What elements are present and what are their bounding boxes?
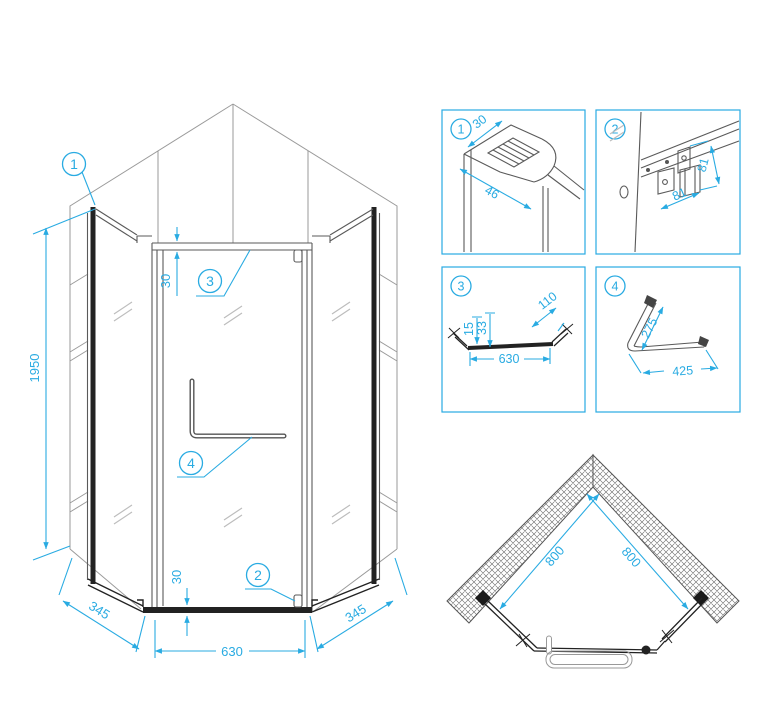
dim-height-label: 1950 [27, 354, 42, 383]
glass-reflection-marks [114, 302, 350, 527]
callout-4-number: 4 [187, 455, 195, 471]
detail-4-dim-long-left [643, 371, 664, 373]
callout-2-leader [245, 589, 295, 601]
detail-2-dim-upper-line [711, 146, 719, 184]
detail-3-dim-total-label: 33 [475, 321, 489, 335]
detail-1-callout-number: 1 [458, 123, 465, 137]
plan-view: 800 800 [447, 455, 739, 668]
detail-1-profile-nose [534, 139, 584, 199]
plan-glass-right [657, 598, 705, 650]
technical-drawing-page: 1950 30 30 630 345 345 1 3 [0, 0, 776, 722]
door-glass-edges [163, 250, 302, 606]
detail-3-dim-profile-label: 15 [462, 322, 476, 336]
detail-4-dim-long-right [701, 368, 717, 369]
detail-2-wall-knob [620, 186, 628, 198]
plan-pivot-dot [642, 646, 651, 655]
detail-2-glass-edge [635, 112, 641, 252]
top-beams [96, 209, 373, 243]
detail-2-hinge-pin [682, 156, 686, 160]
corner-frames [152, 250, 312, 611]
detail-3-dim-ticks [472, 313, 495, 317]
detail-2-plate-hole [663, 180, 668, 185]
enclosure-frame [88, 207, 380, 612]
detail-3-bar [468, 344, 553, 348]
detail-2-screw-right [665, 160, 669, 164]
plan-glass-left [485, 601, 537, 651]
detail-4-dim-long-label: 425 [672, 363, 694, 378]
callout-2-number: 2 [254, 567, 262, 583]
plan-dim-left-label: 800 [542, 543, 568, 569]
detail-1-dim-width-label: 30 [470, 112, 490, 132]
dim-top-profile-label: 30 [158, 274, 173, 288]
detail-3-dim-end-ext [558, 323, 564, 331]
detail-4-handle-tube [628, 300, 706, 351]
top-bar [152, 243, 312, 250]
detail-box-4-handle: 4 275 425 [596, 267, 740, 412]
detail-box-3-bottom-profile: 3 15 33 110 630 [442, 267, 585, 412]
detail-box-1-wall-profile: 1 30 46 [442, 110, 585, 254]
dim-height-extensions [33, 209, 95, 560]
plan-handle-loop-inner [550, 655, 628, 665]
door-handle-outline [192, 381, 284, 436]
callout-1-number: 1 [70, 156, 78, 172]
main-isometric-view: 1950 30 30 630 345 345 1 3 [27, 104, 407, 659]
detail-3-callout-number: 3 [458, 280, 465, 294]
detail-4-callout-number: 4 [612, 280, 619, 294]
plan-dim-right-label: 800 [619, 544, 645, 570]
detail-2-dim-lower-label: 81 [670, 185, 688, 203]
dim-bottom-profile-label: 30 [169, 570, 184, 584]
background-walls [70, 104, 397, 611]
detail-1-dim-depth-label: 46 [482, 183, 501, 202]
shower-enclosure-drawing: 1950 30 30 630 345 345 1 3 [0, 0, 776, 722]
detail-2-screw-left [646, 168, 650, 172]
callout-1-leader [82, 172, 95, 205]
detail-box-2-hinge: 2 81 81 [596, 110, 740, 254]
plan-hinge-marks [516, 630, 674, 647]
detail-4-right-cap [698, 336, 709, 347]
dim-side-right-label: 345 [342, 601, 368, 625]
wall-edges [70, 104, 397, 611]
plan-wall-right [593, 455, 739, 623]
door-bottom-pivot [294, 595, 302, 607]
plan-wall-left [447, 455, 593, 623]
door-handle-core [192, 381, 284, 436]
detail-2-dim-upper-label: 81 [695, 156, 712, 173]
detail-3-dim-end-label: 110 [535, 289, 559, 312]
detail-1-profile-body [464, 125, 548, 252]
door-top-pivot [294, 250, 302, 262]
main-callouts: 1 3 4 2 [63, 153, 296, 602]
detail-1-magnet-strip [488, 138, 539, 167]
side-glass-edges [88, 213, 380, 580]
dim-door-label: 630 [221, 644, 243, 659]
callout-3-number: 3 [206, 273, 214, 289]
plan-handle-loop-outer [546, 651, 632, 668]
detail-3-dim-length-label: 630 [499, 352, 520, 366]
